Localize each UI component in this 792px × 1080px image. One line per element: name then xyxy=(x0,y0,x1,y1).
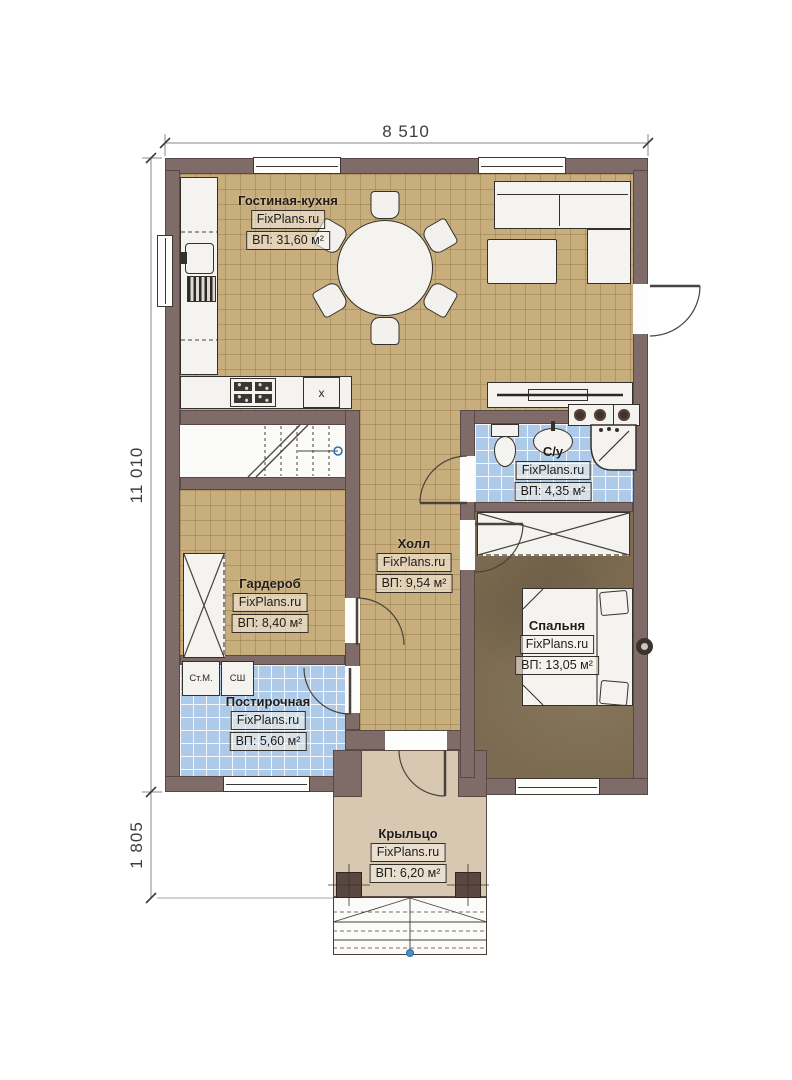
sofa-main xyxy=(494,181,631,229)
label-porch: Крыльцо FixPlans.ru ВП: 6,20 м² xyxy=(370,826,447,883)
label-bathroom: С/у FixPlans.ru ВП: 4,35 м² xyxy=(515,444,592,501)
opening-wardrobe-door xyxy=(345,598,360,643)
opening-entrance-door xyxy=(385,731,447,750)
washing-machine: Ст.М. xyxy=(182,661,220,696)
window-laundry xyxy=(223,776,310,792)
sofa-back-line xyxy=(497,194,628,195)
dining-table xyxy=(337,220,433,316)
pillow xyxy=(599,590,629,616)
window-bedroom xyxy=(515,778,600,795)
watermark: FixPlans.ru xyxy=(516,461,591,480)
sofa-chaise xyxy=(587,229,631,284)
bath-counter-divider xyxy=(613,405,614,425)
knob-icon xyxy=(574,409,586,421)
stove-burners xyxy=(231,379,275,406)
window-top-living xyxy=(478,157,566,174)
label-living-kitchen: Гостиная-кухня FixPlans.ru ВП: 31,60 м² xyxy=(238,193,338,250)
room-area: ВП: 5,60 м² xyxy=(230,732,307,751)
vent-center xyxy=(641,643,648,650)
floor-plan: х Ст.М. СШ xyxy=(0,0,792,1080)
watermark: FixPlans.ru xyxy=(371,843,446,862)
watermark: FixPlans.ru xyxy=(233,593,308,612)
room-area: ВП: 8,40 м² xyxy=(232,614,309,633)
room-name: Крыльцо xyxy=(378,826,437,841)
appliance-x: х xyxy=(303,377,340,408)
dining-chair xyxy=(371,191,400,219)
vent-icon xyxy=(636,638,653,655)
floor-stairs xyxy=(180,425,345,477)
room-area: ВП: 6,20 м² xyxy=(370,864,447,883)
label-laundry: Постирочная FixPlans.ru ВП: 5,60 м² xyxy=(226,694,310,751)
sink-tap-icon xyxy=(551,421,555,431)
room-area: ВП: 31,60 м² xyxy=(246,231,330,250)
room-name: Гардероб xyxy=(239,576,300,591)
wardrobe-closet xyxy=(183,553,225,658)
wall-porch-left xyxy=(333,750,362,797)
opening-laundry-door xyxy=(345,666,360,713)
opening-exit-door xyxy=(633,284,648,334)
opening-bedroom-door xyxy=(460,520,475,570)
appliance-x-mark: х xyxy=(319,386,325,400)
dimension-width-top: 8 510 xyxy=(382,122,430,142)
opening-bathroom-door xyxy=(460,456,475,502)
sofa-divider xyxy=(559,194,560,226)
dining-chair xyxy=(371,317,400,345)
room-name: С/у xyxy=(543,444,563,459)
bedroom-closet xyxy=(477,512,630,556)
wall-bath-bedroom xyxy=(475,502,633,512)
dishwasher xyxy=(187,276,216,302)
watermark: FixPlans.ru xyxy=(251,210,326,229)
stove xyxy=(230,378,276,407)
knob-icon xyxy=(594,409,606,421)
pillow xyxy=(599,680,629,706)
porch-column xyxy=(455,872,481,898)
watermark: FixPlans.ru xyxy=(231,711,306,730)
drying-cabinet: СШ xyxy=(221,661,254,696)
washing-machine-label: Ст.М. xyxy=(189,673,212,684)
dimension-height-left: 11 010 xyxy=(127,447,147,504)
label-hall: Холл FixPlans.ru ВП: 9,54 м² xyxy=(376,536,453,593)
wall-top xyxy=(165,158,648,174)
room-name: Холл xyxy=(398,536,431,551)
room-name: Постирочная xyxy=(226,694,310,709)
room-name: Спальня xyxy=(529,618,585,633)
porch-steps xyxy=(333,897,487,955)
wall-kitchen-stairs xyxy=(180,410,352,425)
drying-cabinet-label: СШ xyxy=(230,673,246,684)
porch-column xyxy=(336,872,362,898)
room-area: ВП: 9,54 м² xyxy=(376,574,453,593)
watermark: FixPlans.ru xyxy=(520,635,595,654)
label-wardrobe: Гардероб FixPlans.ru ВП: 8,40 м² xyxy=(232,576,309,633)
room-area: ВП: 13,05 м² xyxy=(515,656,599,675)
kitchen-sink xyxy=(185,243,214,274)
wall-right xyxy=(633,170,648,795)
knob-icon xyxy=(618,409,630,421)
label-bedroom: Спальня FixPlans.ru ВП: 13,05 м² xyxy=(515,618,599,675)
window-left-kitchen xyxy=(157,235,173,307)
coffee-table xyxy=(487,239,557,284)
watermark: FixPlans.ru xyxy=(377,553,452,572)
window-top-kitchen xyxy=(253,157,341,174)
wall-stairs-bottom xyxy=(180,477,360,490)
room-area: ВП: 4,35 м² xyxy=(515,482,592,501)
tv-screen xyxy=(528,389,588,401)
floor-passage xyxy=(360,410,460,425)
dimension-porch-height: 1 805 xyxy=(127,821,147,869)
kitchen-faucet xyxy=(181,252,187,264)
room-name: Гостиная-кухня xyxy=(238,193,338,208)
